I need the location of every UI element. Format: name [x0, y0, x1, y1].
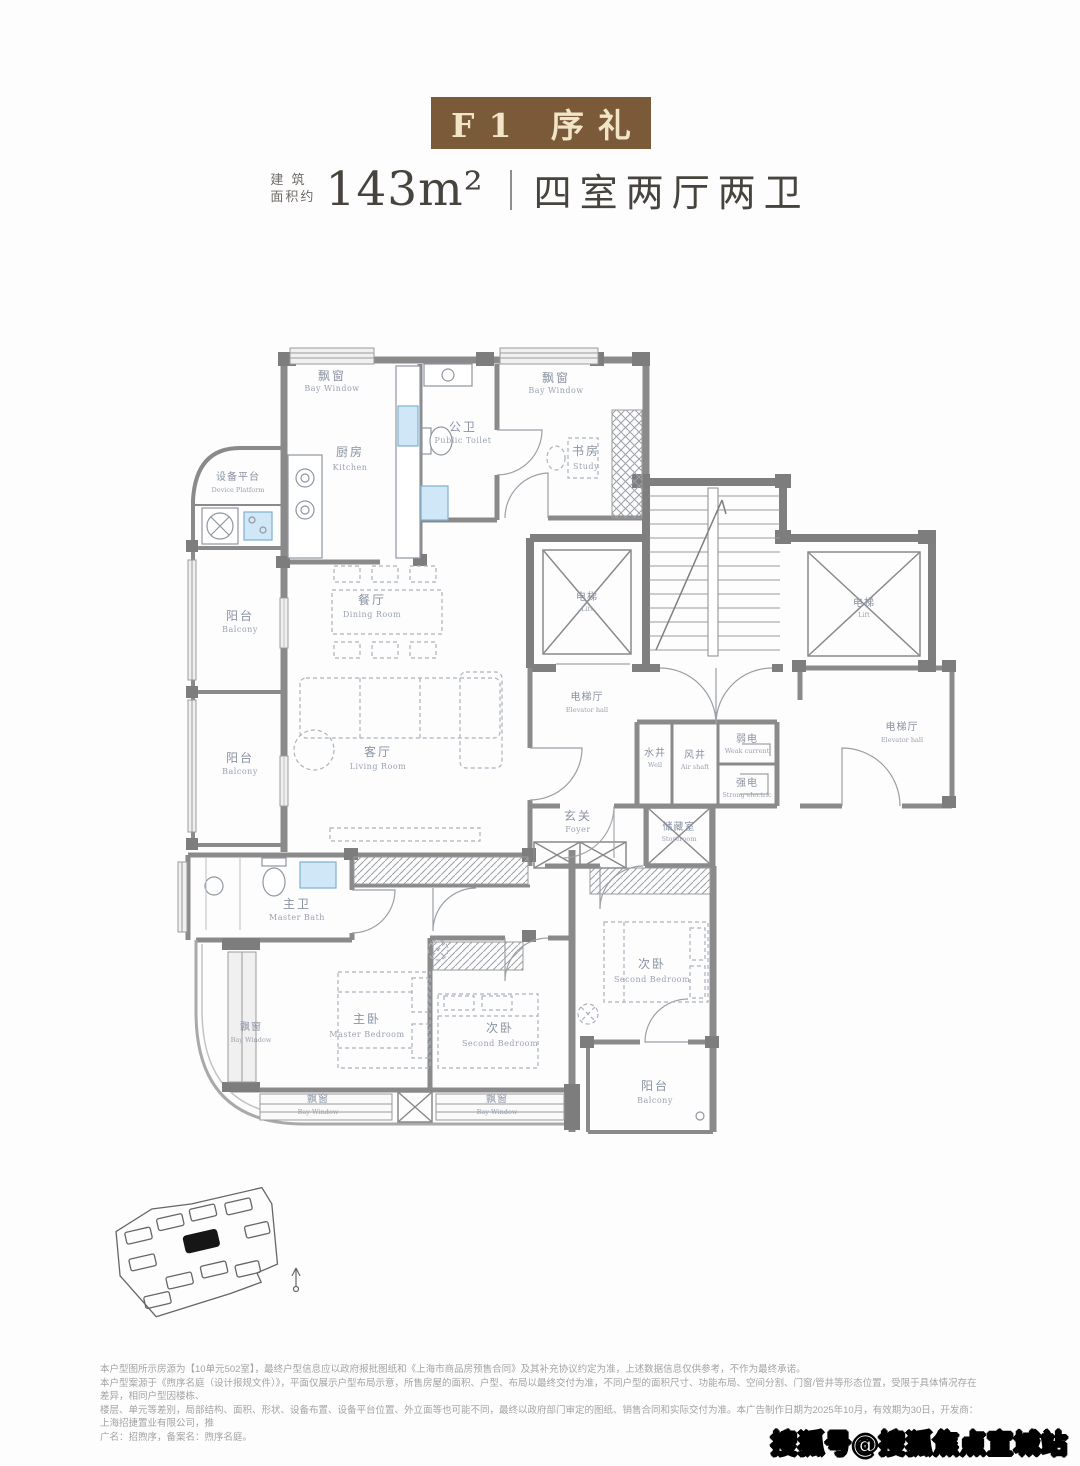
label-strong-current: 强电: [736, 776, 758, 789]
label-bay-window-kitchen-en: Bay Window: [304, 384, 359, 393]
label-master-bedroom-en: Master Bedroom: [329, 1030, 404, 1039]
key-plan-outline: [107, 1182, 291, 1322]
label-well: 水井: [644, 746, 666, 759]
key-plan-units: [121, 1193, 281, 1310]
label-balcony-3: 阳台: [641, 1078, 669, 1093]
label-well-en: Well: [648, 761, 662, 769]
label-bay-window-study-en: Bay Window: [528, 386, 583, 395]
staircase: [649, 488, 780, 656]
label-living: 客厅: [364, 744, 392, 759]
label-master-bath-en: Master Bath: [269, 913, 325, 922]
label-device-platform: 设备平台: [216, 470, 260, 483]
label-study-en: Study: [573, 462, 599, 471]
label-storeroom: 储藏室: [663, 820, 696, 833]
label-bay-window-kitchen: 飘窗: [318, 369, 346, 383]
label-air-shaft-en: Air shaft: [680, 763, 710, 771]
label-study: 书房: [572, 443, 600, 458]
label-air-shaft: 风井: [684, 748, 706, 761]
label-storeroom-en: Storeroom: [661, 835, 696, 843]
label-master-bath: 主卫: [283, 897, 311, 911]
label-second-bedroom-center-en: Second Bedroom: [462, 1039, 538, 1048]
label-foyer: 玄关: [564, 808, 592, 823]
label-lift-right: 电梯: [853, 596, 875, 609]
label-balcony-3-en: Balcony: [637, 1096, 673, 1105]
disclaimer-line-1: 本户型图所示房源为【10单元502室】，最终户型信息应以政府报批图纸和《上海市商…: [100, 1363, 980, 1377]
label-balcony-2-en: Balcony: [222, 767, 258, 776]
compass-icon: [292, 1268, 300, 1292]
label-second-bedroom-right-en: Second Bedroom: [614, 975, 690, 984]
label-bay-window-bottom1: 飘窗: [307, 1092, 329, 1105]
label-foyer-en: Foyer: [565, 825, 591, 834]
sohu-watermark: 搜狐号@搜狐焦点宣城站: [771, 1424, 1068, 1461]
label-device-platform-en: Device Platform: [212, 486, 265, 494]
label-balcony-1: 阳台: [226, 608, 254, 623]
key-plan: [100, 1160, 310, 1335]
label-strong-current-en: Strong electric: [722, 791, 772, 799]
label-dining: 餐厅: [358, 592, 386, 607]
label-lift-right-en: Lift: [858, 611, 870, 619]
label-bay-window-left-en: Bay Window: [231, 1036, 272, 1044]
label-bay-window-left: 飘窗: [240, 1020, 262, 1033]
disclaimer-line-2: 本户型案源于《煦序名庭（设计报规文件）》，平面仅展示户型布局示意，所售房屋的面积…: [100, 1377, 980, 1404]
label-elevator-hall-left-en: Elevator hall: [566, 706, 608, 714]
key-plan-highlighted-unit: [183, 1229, 220, 1253]
label-dining-en: Dining Room: [343, 610, 401, 619]
label-second-bedroom-center: 次卧: [486, 1021, 514, 1035]
floorplan-ad-page: F1 序礼 建 筑 面积约 143m² 四室两厅两卫: [0, 0, 1080, 1466]
label-public-toilet-en: Public Toilet: [435, 436, 492, 445]
label-living-en: Living Room: [350, 762, 407, 771]
label-public-toilet: 公卫: [449, 420, 477, 434]
label-lift-left-en: Lift: [581, 605, 593, 613]
label-kitchen-en: Kitchen: [333, 463, 368, 472]
label-bay-window-bottom1-en: Bay Window: [298, 1108, 339, 1116]
label-lift-left: 电梯: [576, 590, 598, 603]
label-elevator-hall-left: 电梯厅: [571, 690, 604, 703]
label-bay-window-study: 飘窗: [542, 371, 570, 385]
label-elevator-hall-right: 电梯厅: [886, 720, 919, 733]
label-weak-current-en: Weak current: [725, 747, 770, 755]
label-bay-window-bottom2-en: Bay Window: [477, 1108, 518, 1116]
label-bay-window-bottom2: 飘窗: [486, 1092, 508, 1105]
label-weak-current: 弱电: [736, 732, 758, 745]
label-master-bedroom: 主卧: [353, 1012, 381, 1026]
label-kitchen: 厨房: [336, 444, 364, 459]
label-second-bedroom-right: 次卧: [638, 957, 666, 971]
label-balcony-1-en: Balcony: [222, 625, 258, 634]
floor-plan: 飘窗 Bay Window 厨房 Kitchen 设备平台 Device Pla…: [0, 0, 1080, 1164]
label-elevator-hall-right-en: Elevator hall: [881, 736, 923, 744]
label-balcony-2: 阳台: [226, 750, 254, 765]
floor-plan-svg: 飘窗 Bay Window 厨房 Kitchen 设备平台 Device Pla…: [0, 0, 1080, 1160]
doors: [284, 430, 900, 1042]
